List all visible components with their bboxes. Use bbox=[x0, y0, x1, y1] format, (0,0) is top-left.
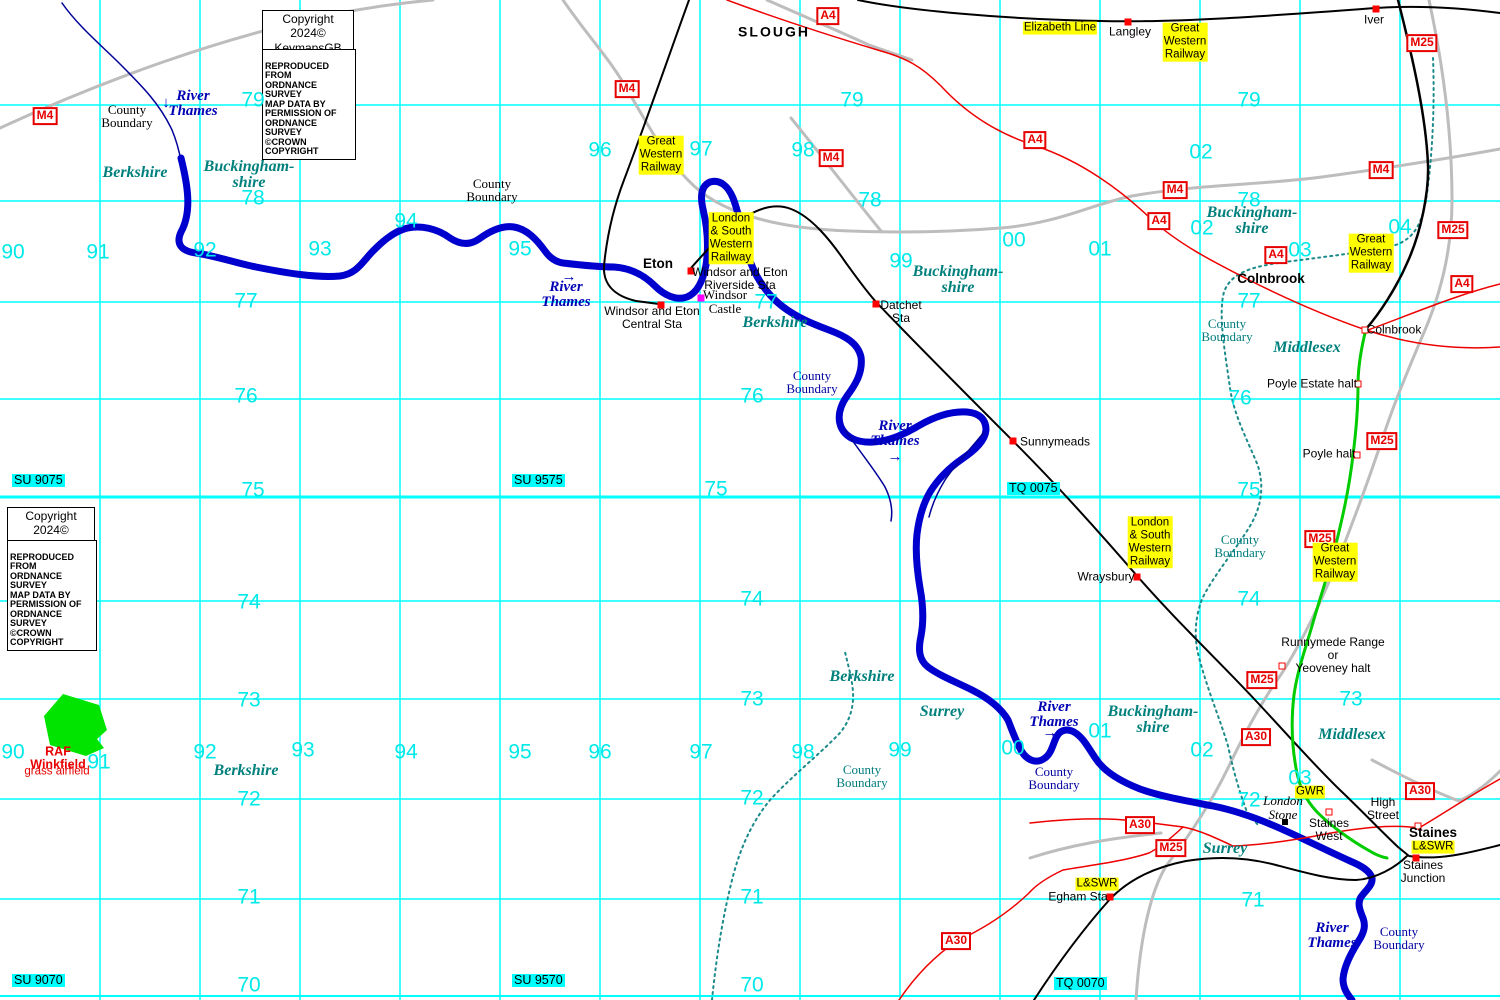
colnbrook-label: Colnbrook bbox=[1237, 272, 1305, 286]
county-name-label: Buckingham- shire bbox=[913, 264, 1004, 296]
grid-number: 91 bbox=[87, 752, 110, 773]
grid-number: 79 bbox=[1237, 90, 1260, 111]
station-label: Wraysbury bbox=[1077, 571, 1134, 584]
great-western-railway-label: Great Western Railway bbox=[1313, 543, 1358, 582]
grid-number: 99 bbox=[889, 251, 912, 272]
county-boundary-label: County Boundary bbox=[1028, 765, 1079, 791]
lswr-short-label: L&SWR bbox=[1076, 878, 1119, 891]
road-badge-a4: A4 bbox=[1450, 275, 1473, 293]
grid-number: 74 bbox=[1237, 589, 1260, 610]
grid-number: 91 bbox=[86, 242, 109, 263]
road-badge-a4: A4 bbox=[1023, 131, 1046, 149]
road-badge-a30: A30 bbox=[1125, 816, 1155, 834]
grid-number: 74 bbox=[740, 589, 763, 610]
grid-number: 74 bbox=[237, 592, 260, 613]
station-label: Colnbrook bbox=[1367, 324, 1422, 337]
station-label: London Stone bbox=[1263, 794, 1303, 822]
grid-number: 93 bbox=[308, 239, 331, 260]
grid-number: 72 bbox=[740, 788, 763, 809]
county-name-label: Surrey bbox=[920, 704, 964, 720]
lswr-label: London & South Western Railway bbox=[709, 212, 754, 264]
grid-number: 71 bbox=[237, 887, 260, 908]
copyright-line1: Copyright 2024© bbox=[8, 509, 94, 538]
station-label: High Street bbox=[1367, 796, 1399, 822]
grid-number: 02 bbox=[1190, 740, 1213, 761]
station-label: Windsor Castle bbox=[703, 288, 747, 316]
sheet-label: TQ 0070 bbox=[1054, 977, 1107, 990]
sheet-label: SU 9075 bbox=[12, 474, 65, 487]
os-notice-text: REPRODUCED FROM ORDNANCE SURVEY MAP DATA… bbox=[265, 61, 337, 157]
grid-number: 76 bbox=[1228, 388, 1251, 409]
grid-number: 77 bbox=[1237, 291, 1260, 312]
county-boundary-surrey bbox=[712, 652, 853, 1000]
county-name-label: Berkshire bbox=[743, 315, 808, 331]
county-name-label: Middlesex bbox=[1273, 340, 1341, 356]
sunnymeads-station-marker bbox=[1010, 438, 1017, 445]
staines-west-marker bbox=[1326, 809, 1333, 816]
sheet-label: SU 9575 bbox=[512, 474, 565, 487]
grid-number: 77 bbox=[234, 291, 257, 312]
station-label: Windsor and Eton Central Sta bbox=[604, 305, 699, 331]
road-badge-m25: M25 bbox=[1246, 671, 1277, 689]
river-flow-arrow: ↓ bbox=[162, 95, 170, 111]
county-boundary-label: County Boundary bbox=[786, 369, 837, 395]
road-badge-m4: M4 bbox=[1163, 181, 1188, 199]
county-name-label: Berkshire bbox=[103, 165, 168, 181]
grid-number: 98 bbox=[791, 140, 814, 161]
river-flow-arrow: → bbox=[1043, 725, 1058, 741]
road-badge-m25: M25 bbox=[1155, 839, 1186, 857]
river-flow-arrow: ↓ bbox=[1357, 925, 1365, 941]
county-name-label: Surrey bbox=[1203, 841, 1247, 857]
raf-airfield-type-label: grass airfield bbox=[24, 766, 89, 778]
datchet-station-marker bbox=[873, 301, 880, 308]
os-notice-box: REPRODUCED FROM ORDNANCE SURVEY MAP DATA… bbox=[7, 540, 97, 651]
grid-number: 73 bbox=[1339, 689, 1362, 710]
grid-number: 77 bbox=[754, 292, 777, 313]
grid-number: 02 bbox=[1189, 142, 1212, 163]
grid-number: 78 bbox=[858, 190, 881, 211]
county-name-label: Buckingham- shire bbox=[204, 159, 295, 191]
grid-number: 01 bbox=[1088, 239, 1111, 260]
county-name-label: Buckingham- shire bbox=[1108, 704, 1199, 736]
grid-number: 97 bbox=[689, 139, 712, 160]
river-flow-arrow: → bbox=[888, 449, 903, 465]
road-badge-m25: M25 bbox=[1406, 34, 1437, 52]
road-badge-a4: A4 bbox=[1147, 212, 1170, 230]
a30-road-spur bbox=[1030, 819, 1183, 827]
road-badge-a30: A30 bbox=[1241, 728, 1271, 746]
road-badge-m4: M4 bbox=[33, 107, 58, 125]
grid-number: 00 bbox=[1002, 230, 1025, 251]
map-canvas: Copyright 2024© KeymapsGB REPRODUCED FRO… bbox=[0, 0, 1500, 1000]
great-western-railway-label: Great Western Railway bbox=[1349, 234, 1394, 273]
grid-number: 95 bbox=[508, 239, 531, 260]
road-badge-m4: M4 bbox=[1369, 161, 1394, 179]
grid-number: 98 bbox=[791, 742, 814, 763]
grid-number: 75 bbox=[704, 479, 727, 500]
county-boundary-label: County Boundary bbox=[1373, 925, 1424, 951]
grid-number: 72 bbox=[1237, 790, 1260, 811]
os-notice-box: REPRODUCED FROM ORDNANCE SURVEY MAP DATA… bbox=[262, 49, 356, 160]
great-western-railway-label: Great Western Railway bbox=[1163, 23, 1208, 62]
grid-number: 95 bbox=[508, 742, 531, 763]
grid-number: 03 bbox=[1288, 240, 1311, 261]
road-badge-m25: M25 bbox=[1366, 432, 1397, 450]
grid-number: 73 bbox=[237, 690, 260, 711]
station-label: Sunnymeads bbox=[1020, 436, 1090, 449]
sheet-label: SU 9070 bbox=[12, 974, 65, 987]
grid-number: 73 bbox=[740, 689, 763, 710]
eton-label: Eton bbox=[643, 257, 673, 271]
grid-number: 70 bbox=[237, 975, 260, 996]
grid-number: 94 bbox=[394, 211, 417, 232]
road-badge-a4: A4 bbox=[816, 7, 839, 25]
road-badge-m25: M25 bbox=[1437, 221, 1468, 239]
river-thames-upper-thin bbox=[62, 3, 181, 161]
county-name-label: Middlesex bbox=[1318, 727, 1386, 743]
county-boundary-label: County Boundary bbox=[101, 103, 152, 129]
grid-number: 93 bbox=[291, 740, 314, 761]
os-notice-text: REPRODUCED FROM ORDNANCE SURVEY MAP DATA… bbox=[10, 552, 82, 648]
county-boundary-label: County Boundary bbox=[1214, 533, 1265, 559]
county-boundary-middlesex bbox=[1196, 58, 1434, 826]
lswr-short-label: L&SWR bbox=[1412, 841, 1455, 854]
copyright-line1: Copyright 2024© bbox=[263, 12, 353, 41]
grid-number: 71 bbox=[740, 887, 763, 908]
grid-number: 96 bbox=[588, 140, 611, 161]
elizabeth-line-label: Elizabeth Line bbox=[1023, 22, 1097, 35]
county-boundary-label: County Boundary bbox=[836, 763, 887, 789]
grid-number: 75 bbox=[1237, 480, 1260, 501]
station-label: Egham Sta bbox=[1048, 891, 1107, 904]
grid-number: 76 bbox=[234, 386, 257, 407]
grid-number: 94 bbox=[394, 742, 417, 763]
road-badge-m4: M4 bbox=[615, 80, 640, 98]
station-label: Runnymede Range or Yeoveney halt bbox=[1281, 636, 1384, 674]
station-label: Langley bbox=[1109, 26, 1151, 39]
iver-station-marker bbox=[1373, 6, 1380, 13]
grid-number: 76 bbox=[740, 386, 763, 407]
grid-number: 97 bbox=[689, 742, 712, 763]
grid-number: 71 bbox=[1241, 890, 1264, 911]
grid-number: 92 bbox=[193, 240, 216, 261]
grid-number: 96 bbox=[588, 742, 611, 763]
map-vector-layer bbox=[0, 0, 1500, 1000]
road-badge-a4: A4 bbox=[1264, 246, 1287, 264]
river-thames-label: River Thames bbox=[1307, 921, 1356, 951]
grid-number: 90 bbox=[1, 242, 24, 263]
grid-number: 79 bbox=[241, 90, 264, 111]
station-label: Staines West bbox=[1309, 817, 1349, 843]
station-label: Poyle halt bbox=[1303, 448, 1356, 461]
station-label: Datchet Sta bbox=[880, 299, 921, 325]
river-thames-label: River Thames bbox=[870, 419, 919, 449]
lswr-label: London & South Western Railway bbox=[1128, 516, 1173, 568]
county-boundary-label: County Boundary bbox=[1201, 317, 1252, 343]
staines-label: Staines bbox=[1409, 826, 1457, 840]
grid-number: 99 bbox=[888, 740, 911, 761]
gray-road-slough bbox=[791, 118, 881, 231]
great-western-railway-label: Great Western Railway bbox=[639, 136, 684, 175]
sheet-label: SU 9570 bbox=[512, 974, 565, 987]
grid-number: 90 bbox=[1, 742, 24, 763]
grid-number: 75 bbox=[241, 480, 264, 501]
road-badge-m4: M4 bbox=[819, 149, 844, 167]
grid-number: 92 bbox=[193, 742, 216, 763]
sheet-label: TQ 0075 bbox=[1007, 482, 1060, 495]
a30-gray-slip bbox=[1030, 833, 1161, 858]
grid-number: 79 bbox=[840, 90, 863, 111]
grid-number: 72 bbox=[237, 789, 260, 810]
county-boundary-label: County Boundary bbox=[466, 177, 517, 203]
slough-label: SLOUGH bbox=[738, 25, 810, 40]
grid-number: 70 bbox=[740, 975, 763, 996]
county-name-label: Berkshire bbox=[214, 763, 279, 779]
station-label: Staines Junction bbox=[1401, 859, 1446, 885]
station-label: Poyle Estate halt bbox=[1267, 378, 1357, 391]
river-thames-label: River Thames bbox=[168, 89, 217, 119]
river-flow-arrow: → bbox=[562, 269, 577, 285]
road-badge-a30: A30 bbox=[1405, 782, 1435, 800]
county-name-label: Berkshire bbox=[830, 669, 895, 685]
grid-number: 00 bbox=[1001, 738, 1024, 759]
county-name-label: Buckingham- shire bbox=[1207, 205, 1298, 237]
station-label: Iver bbox=[1364, 14, 1384, 27]
road-badge-a30: A30 bbox=[941, 932, 971, 950]
